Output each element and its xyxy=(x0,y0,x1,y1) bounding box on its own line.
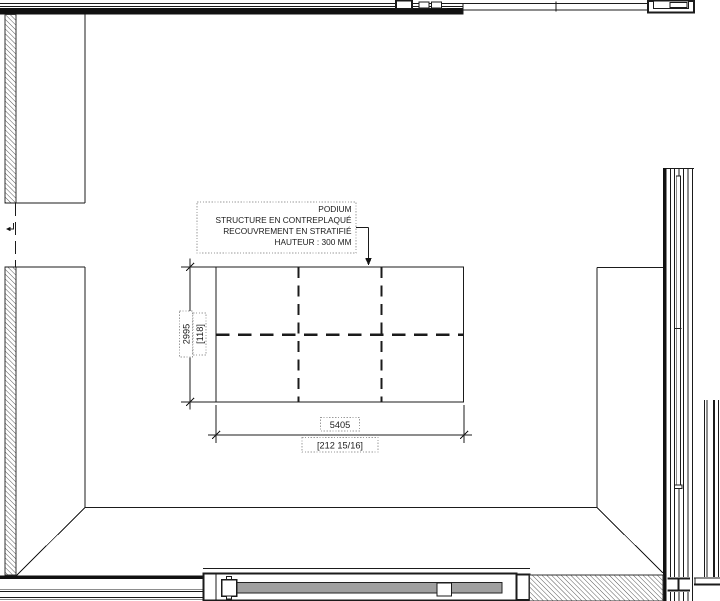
bottom-wall-solid xyxy=(0,575,204,579)
wall-hatch-left-upper xyxy=(5,15,16,204)
height-dim-metric-label: 2995 xyxy=(182,324,192,344)
callout-line-1: PODIUM xyxy=(318,204,351,214)
callout-line-2: STRUCTURE EN CONTREPLAQUÉ xyxy=(216,215,352,225)
width-dim-imperial-label: [212 15/16] xyxy=(317,441,363,451)
sliding-door-leaf xyxy=(228,583,502,594)
lock-block-pin-bottom xyxy=(227,596,232,599)
floor-plan-svg: 2995 [118] 5405 [212 15/16] PODIUM STRUC… xyxy=(0,0,720,601)
wall-hatch-left-lower xyxy=(5,267,16,575)
curtain-wall-mullion-foot xyxy=(675,485,683,489)
top-column-box xyxy=(396,1,412,9)
background xyxy=(0,0,720,601)
top-frame-block-1 xyxy=(419,2,429,8)
sliding-door-handle-block xyxy=(437,583,452,596)
height-dim-imperial-label: [118] xyxy=(195,324,205,344)
sliding-door-assembly xyxy=(204,574,530,601)
curtain-wall-solid-line xyxy=(663,169,667,601)
sliding-door-lock-block xyxy=(222,580,237,597)
curtain-wall-base-connector xyxy=(667,577,691,592)
curtain-wall-mullion-bar xyxy=(676,176,680,485)
sliding-door-end-cap xyxy=(517,575,530,601)
top-wall-solid xyxy=(0,8,463,14)
callout-line-4: HAUTEUR : 300 MM xyxy=(275,237,352,247)
lock-block-pin-top xyxy=(227,577,232,580)
callout-line-3: RECOUVREMENT EN STRATIFIÉ xyxy=(223,226,352,236)
wall-hatch-bottom xyxy=(530,575,664,601)
width-dim-metric-label: 5405 xyxy=(330,420,350,430)
top-frame-block-2 xyxy=(432,2,442,8)
floor-plan-canvas: 2995 [118] 5405 [212 15/16] PODIUM STRUC… xyxy=(0,0,720,601)
top-right-frame-panel xyxy=(670,3,687,8)
